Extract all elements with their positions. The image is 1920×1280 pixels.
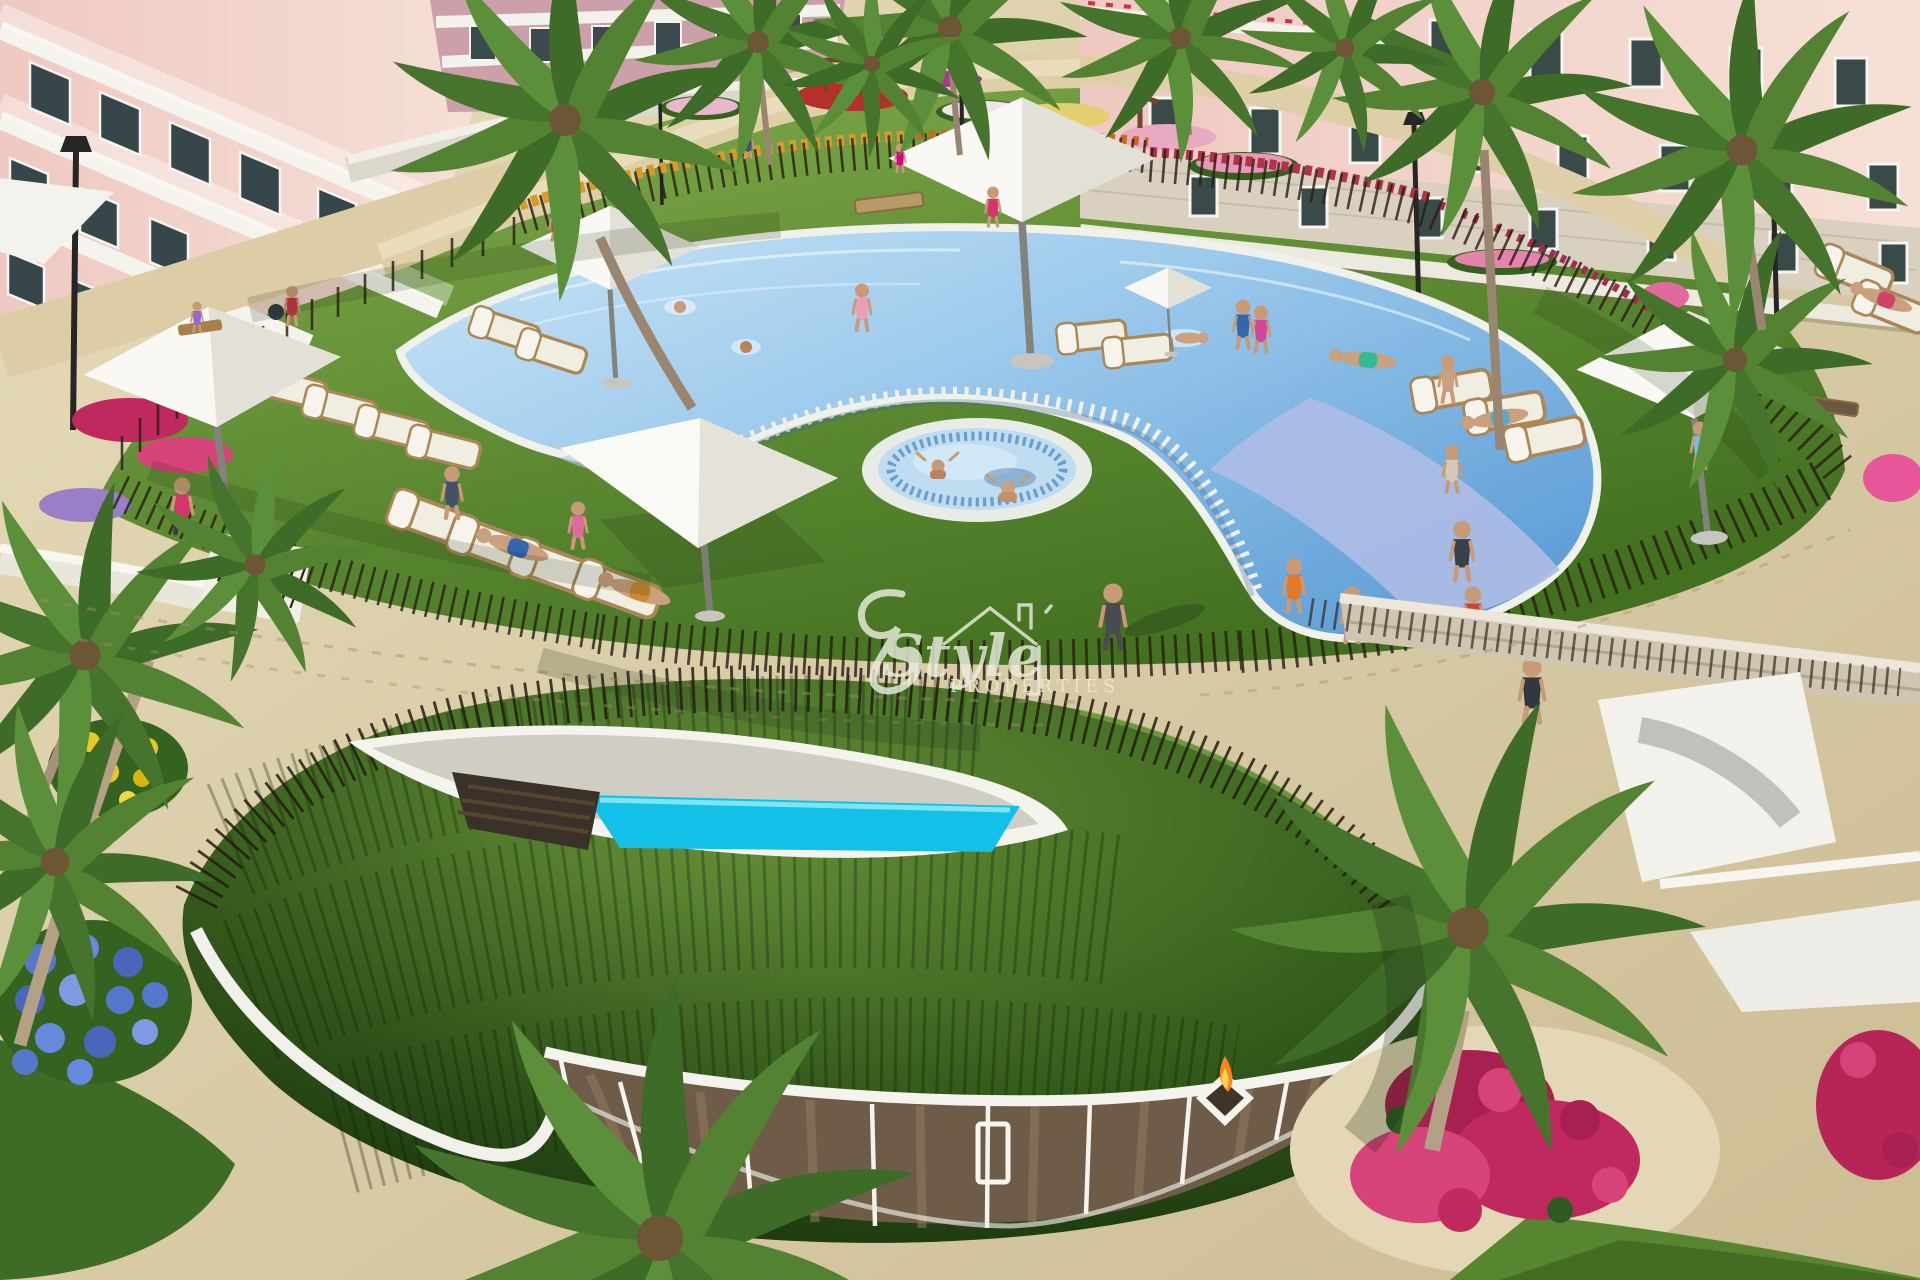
round-spa-pool — [862, 418, 1092, 522]
render-image: Style PROPERTIES — [0, 0, 1920, 1280]
watermark-caption: PROPERTIES — [950, 677, 1120, 697]
